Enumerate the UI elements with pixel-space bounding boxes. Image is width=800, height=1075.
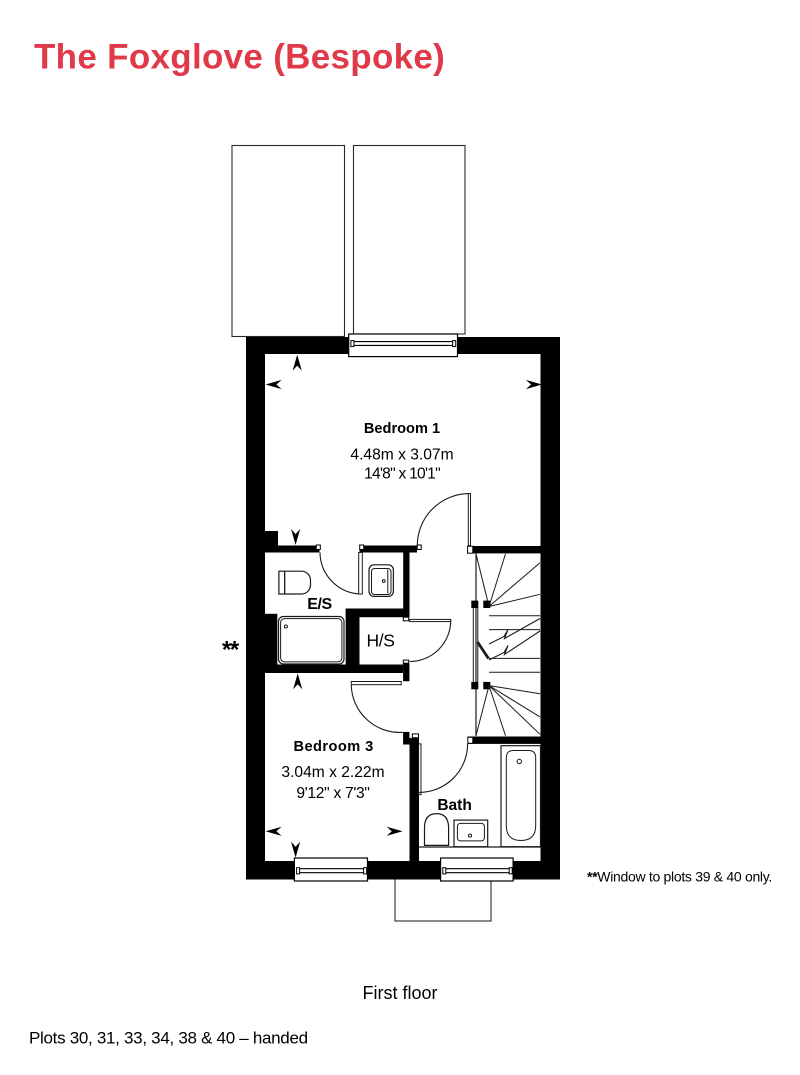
svg-text:E/S: E/S bbox=[307, 596, 332, 613]
svg-text:**: ** bbox=[222, 636, 240, 663]
svg-text:9'12" x 7'3": 9'12" x 7'3" bbox=[296, 785, 369, 802]
svg-text:3.04m x 2.22m: 3.04m x 2.22m bbox=[281, 764, 384, 781]
svg-text:First floor: First floor bbox=[362, 983, 437, 1003]
svg-text:Bedroom 3: Bedroom 3 bbox=[293, 739, 373, 755]
svg-text:Bedroom 1: Bedroom 1 bbox=[364, 421, 440, 437]
svg-text:H/S: H/S bbox=[367, 631, 395, 651]
svg-text:4.48m x 3.07m: 4.48m x 3.07m bbox=[350, 447, 453, 464]
svg-text:The Foxglove (Bespoke): The Foxglove (Bespoke) bbox=[34, 38, 445, 77]
svg-text:**Window to plots 39 & 40 only: **Window to plots 39 & 40 only. bbox=[587, 869, 772, 885]
svg-text:Bath: Bath bbox=[437, 797, 471, 814]
svg-text:14'8" x 10'1": 14'8" x 10'1" bbox=[364, 465, 440, 482]
svg-text:Plots 30, 31, 33, 34, 38 & 40: Plots 30, 31, 33, 34, 38 & 40 – handed bbox=[29, 1029, 308, 1048]
